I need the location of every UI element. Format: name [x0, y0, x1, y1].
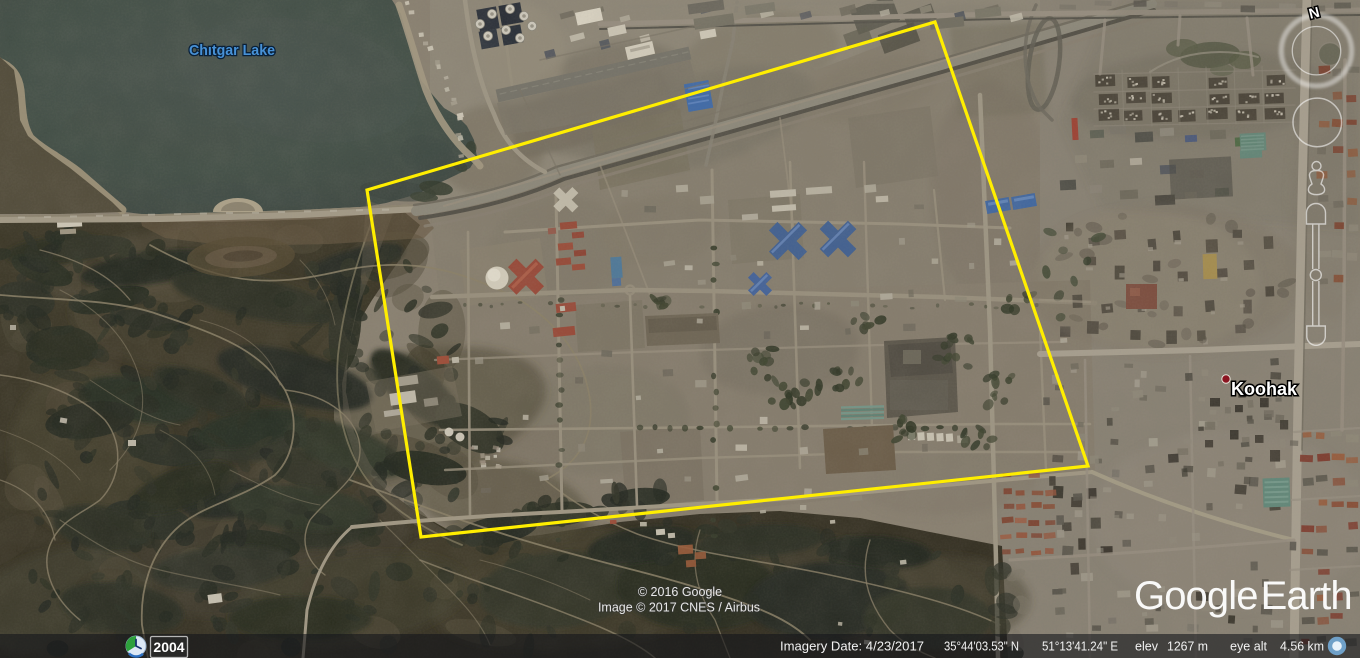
svg-text:1267 m: 1267 m	[1167, 639, 1208, 654]
svg-text:Image © 2017 CNES / Airbus: Image © 2017 CNES / Airbus	[598, 601, 760, 615]
svg-text:GoogleEarth: GoogleEarth	[1134, 574, 1352, 618]
svg-text:elev: elev	[1135, 639, 1158, 654]
svg-text:Chıtgar Lake: Chıtgar Lake	[189, 42, 275, 59]
svg-text:35°44'03.53" N: 35°44'03.53" N	[944, 639, 1019, 654]
svg-text:2004: 2004	[153, 639, 184, 655]
svg-text:© 2016 Google: © 2016 Google	[638, 585, 722, 599]
svg-text:Koohak: Koohak	[1231, 378, 1298, 399]
svg-text:eye alt: eye alt	[1230, 639, 1267, 654]
svg-text:4.56 km: 4.56 km	[1280, 639, 1324, 654]
svg-text:Imagery Date: 4/23/2017: Imagery Date: 4/23/2017	[780, 639, 924, 654]
svg-text:51°13'41.24" E: 51°13'41.24" E	[1042, 639, 1118, 654]
